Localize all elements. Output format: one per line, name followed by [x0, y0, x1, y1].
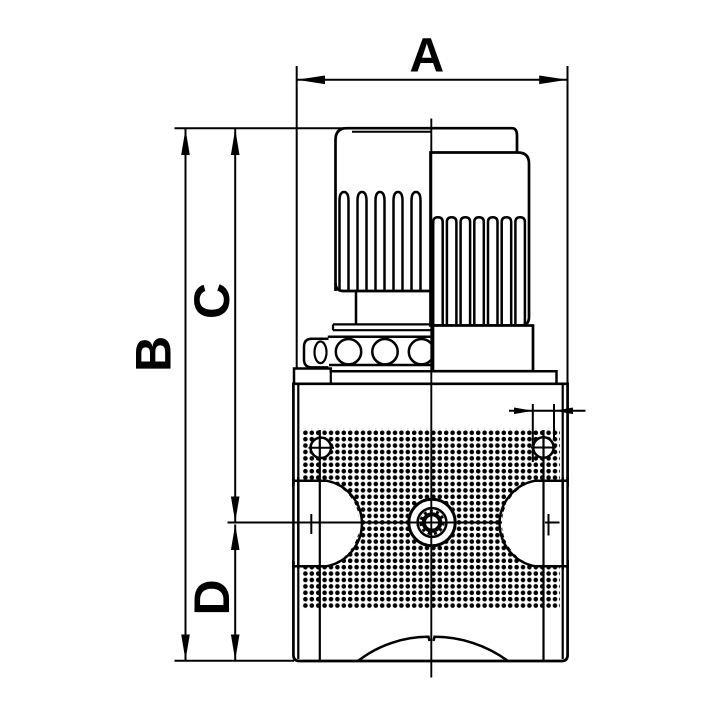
- svg-text:A: A: [410, 30, 445, 83]
- svg-text:D: D: [184, 579, 240, 615]
- svg-text:C: C: [184, 283, 240, 319]
- svg-text:B: B: [125, 336, 181, 372]
